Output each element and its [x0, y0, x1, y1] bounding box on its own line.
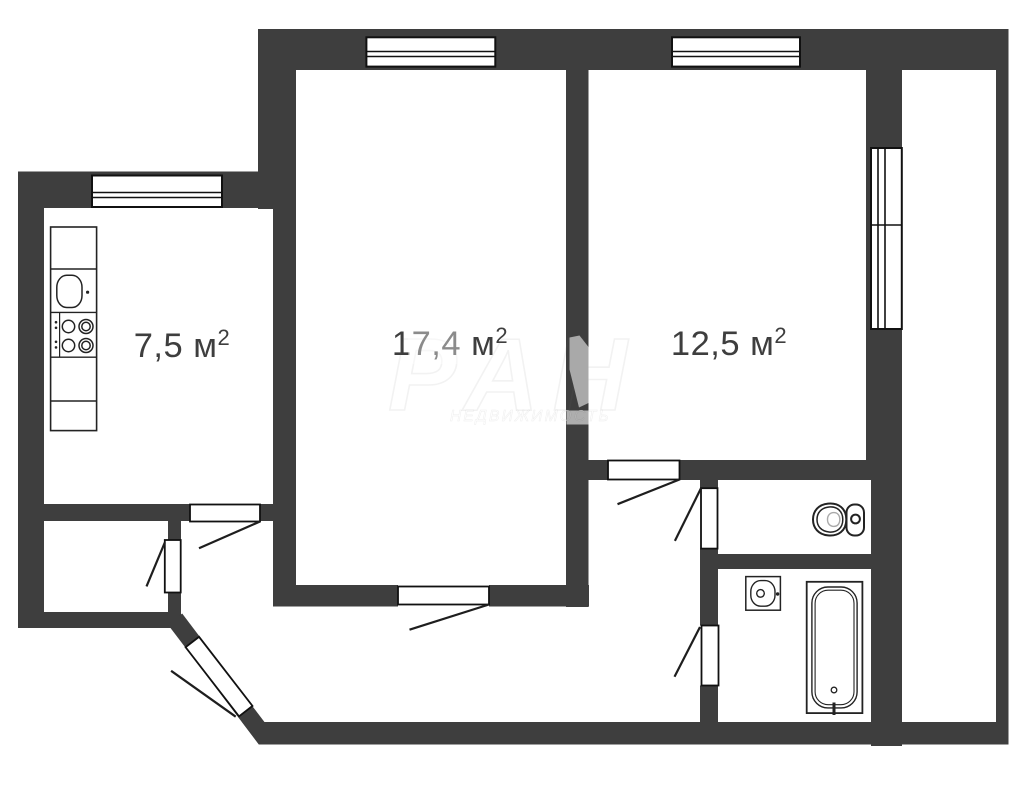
- svg-text:НЕДВИЖИМОСТЬ: НЕДВИЖИМОСТЬ: [450, 408, 611, 425]
- svg-text:12,5 м2: 12,5 м2: [671, 323, 787, 363]
- svg-text:7,5 м2: 7,5 м2: [134, 325, 231, 365]
